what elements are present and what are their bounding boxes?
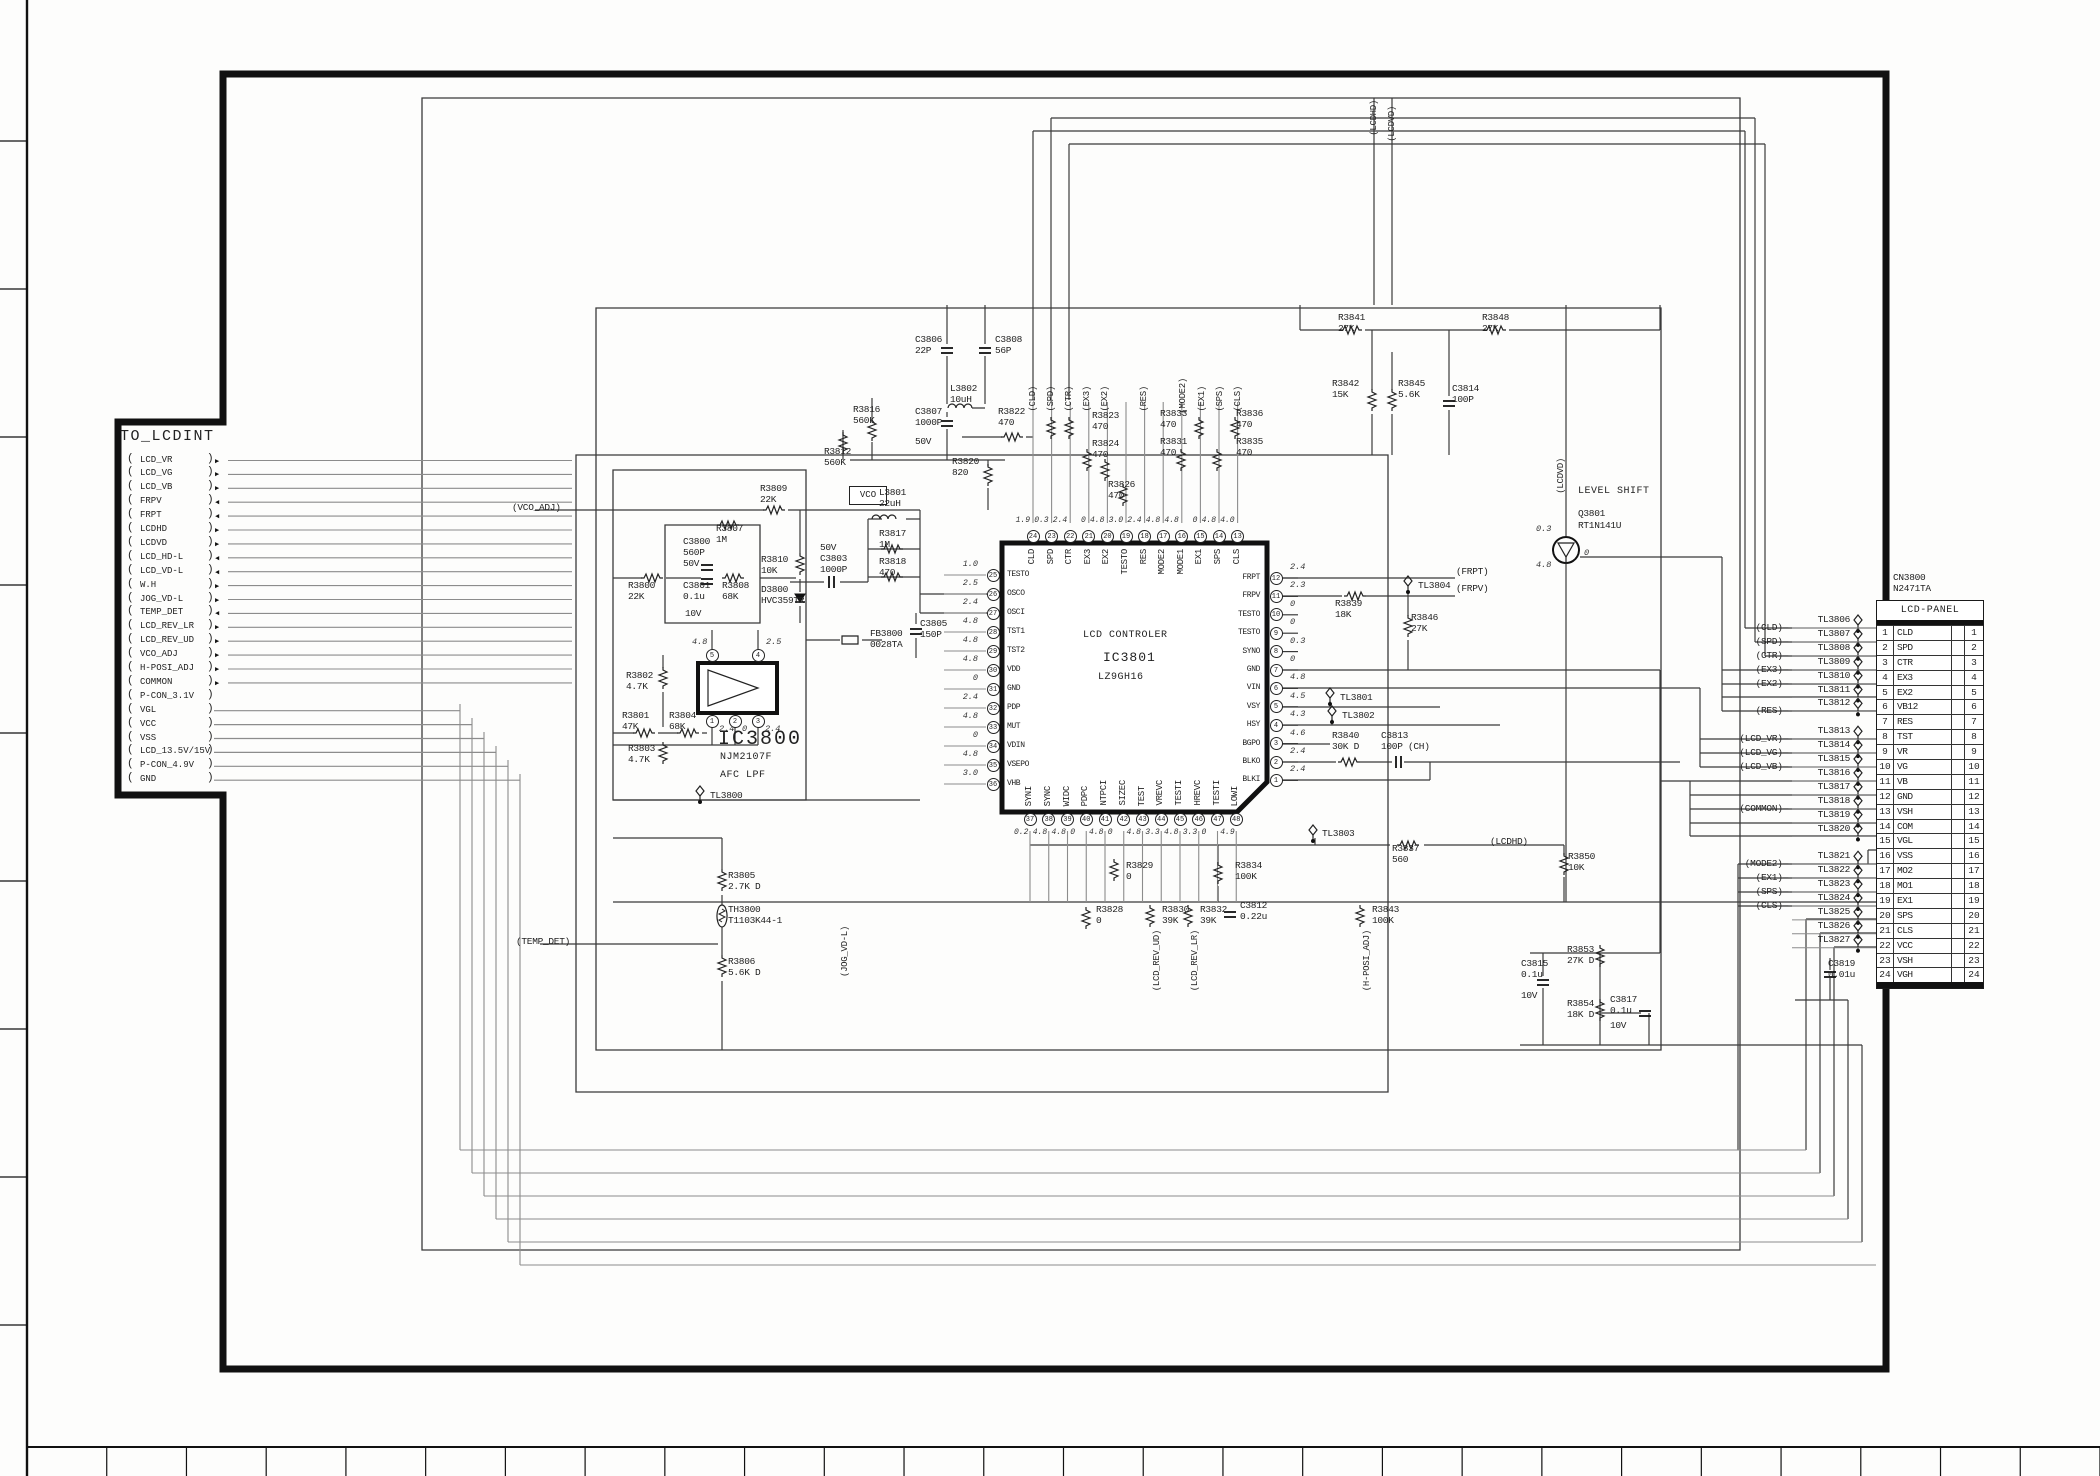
connector-blank-cell [1952,805,1965,819]
signal-arrow-in: ◀ [215,498,219,507]
connector-row-5: 5EX25 [1877,685,1983,700]
wire-tag: (CLS)— [1676,900,1788,911]
testpoint-tl3807: TL3807 [1790,628,1850,639]
pin-voltage: 2.4 [1290,746,1305,756]
signal-arrow-in: ◀ [215,554,219,563]
wire-tag-spd: (SPD) [1046,386,1056,412]
connector-row-7: 7RES7 [1877,714,1983,729]
connector-blank-cell [1952,790,1965,804]
pin-voltage: 4.8 [1198,516,1216,525]
connector-row-9: 9VR9 [1877,744,1983,759]
ic3801-pin-name-widc: WIDC [1062,786,1072,806]
connector-pin-number: 9 [1877,745,1894,759]
ic3801-pin-name-vrevc: VREVC [1155,780,1165,806]
symbol [1854,615,1862,625]
symbol [1857,713,1860,716]
signal-arrow-in: ◀ [215,609,219,618]
connector-pin-number-right: 7 [1965,715,1983,729]
connector-pin-name: TST [1894,730,1952,744]
wire-tag: (CLD)— [1676,622,1788,633]
part-r3839: R3839 18K [1335,598,1362,620]
connector-row-24: 24VGH24 [1877,967,1983,982]
symbol [1854,726,1862,736]
part-r3800: R3800 22K [628,580,655,602]
ic3801-pin-name-vsy: VSY [1202,702,1260,711]
connector-pin-number-right: 1 [1965,626,1983,640]
signal-label-h-posi-adj: H-POSI_ADJ [140,663,194,673]
symbol [842,636,858,644]
ic3801-pin-4: 4 [1270,719,1283,732]
connector-pin-name: SPS [1894,909,1952,923]
wire-tag-lcdrevud: (LCD_REV_UD) [1152,930,1162,991]
testpoint-tl3813: TL3813 [1790,725,1850,736]
signal-arrow-out: ▶ [215,651,219,660]
signal-bracket-open: ( [127,536,134,548]
signal-bracket-open: ( [127,689,134,701]
ic3801-pin-name-ex1: EX1 [1194,549,1204,564]
signal-bracket-close: ) [207,689,214,701]
ic3801-pin-40: 40 [1080,813,1093,826]
pin-voltage: 2.4 [1049,516,1067,525]
part-r3816: R3816 560K [853,404,880,426]
signal-bracket-open: ( [127,758,134,770]
connector-pin-number: 12 [1877,790,1894,804]
connector-pin-number: 10 [1877,760,1894,774]
signal-bracket-open: ( [127,564,134,576]
connector-pin-number-right: 12 [1965,790,1983,804]
connector-pin-number-right: 19 [1965,894,1983,908]
pin-voltage: 4.8 [944,749,978,759]
ic3801-pin-name-mut: MUT [1007,722,1020,731]
connector-pin-name: CLD [1894,626,1952,640]
ic3801-pin-24: 24 [1027,530,1040,543]
wire-tag-ctr: (CTR) [1064,386,1074,412]
ic3801-pin-47: 47 [1211,813,1224,826]
connector-blank-cell [1952,879,1965,893]
ic3801-pin-19: 19 [1120,530,1133,543]
connector-pin-number-right: 2 [1965,641,1983,655]
ic3801-pin-23: 23 [1045,530,1058,543]
signal-arrow-in: ◀ [215,512,219,521]
part-l3802: L3802 10uH [950,383,977,405]
ic3801-pin-34: 34 [987,740,1000,753]
ic3800-pin-voltage: 2.4 [765,724,780,734]
connector-pin-number: 4 [1877,671,1894,685]
ic3801-pin-name-sync: SYNC [1043,786,1053,806]
connector-blank-cell [1952,671,1965,685]
wire-tag-jogvdl: (JOG_VD-L) [840,926,850,977]
testpoint-tl3810: TL3810 [1790,670,1850,681]
pin-voltage: 4.8 [1161,516,1179,525]
connector-pin-name: VCC [1894,939,1952,953]
ic3801-pin-20: 20 [1101,530,1114,543]
pin-voltage: 4.8 [1164,828,1178,837]
wire-tag: (LCD_VG)— [1676,747,1788,758]
testpoint-tl3823: TL3823 [1790,878,1850,889]
wire-tag-cld: (CLD) [1028,386,1038,412]
connector-row-16: 16VSS16 [1877,848,1983,863]
ic3800-pin-voltage: 2.5 [766,637,781,647]
wire-tag-lcdhd: (LCDHD) [1369,100,1379,136]
signal-bracket-open: ( [127,592,134,604]
ic3801-pin-26: 26 [987,588,1000,601]
signal-bracket-close: ) [207,744,214,756]
ic3801-desc: LCD CONTROLER [1083,630,1168,641]
ic3801-pin-name-testo: TESTO [1202,610,1260,619]
testpoint-tl3814: TL3814 [1790,739,1850,750]
testpoint-tl3827: TL3827 [1790,934,1850,945]
ic3801-pin-16: 16 [1175,530,1188,543]
connector-pin-number: 20 [1877,909,1894,923]
testpoint-tl3824: TL3824 [1790,892,1850,903]
signal-bracket-open: ( [127,717,134,729]
wire-tag: (COMMON)— [1676,803,1788,814]
part-r3802: R3802 4.7K [626,670,653,692]
connector-row-1: 1CLD1 [1877,625,1983,640]
wire-tag-lcdvd: (LCDVD) [1387,106,1397,142]
signal-arrow-out: ▶ [215,582,219,591]
testpoint-tl3826: TL3826 [1790,920,1850,931]
ic3801-pin-name-testi: TESTI [1174,780,1184,806]
testpoint-tl3817: TL3817 [1790,781,1850,792]
connector-pin-name: VSH [1894,805,1952,819]
connector-row-11: 11VB11 [1877,774,1983,789]
connector-pin-name: VG [1894,760,1952,774]
ic3801-pin-2: 2 [1270,756,1283,769]
connector-pin-number-right: 13 [1965,805,1983,819]
signal-arrow-out: ▶ [215,484,219,493]
connector-pin-number-right: 16 [1965,849,1983,863]
connector-pin-number-right: 15 [1965,834,1983,848]
symbol [1331,721,1334,724]
signal-bracket-close: ) [207,550,214,562]
connector-pin-number: 5 [1877,686,1894,700]
symbol [1083,449,1091,471]
connector-blank-cell [1952,834,1965,848]
ic3801-pin-1: 1 [706,715,719,728]
pin-voltage: 0 [944,673,978,683]
symbol [1082,907,1090,929]
signal-label-temp-det: TEMP_DET [140,607,183,617]
part-tl3803: TL3803 [1322,828,1354,839]
pin-voltage: 1.0 [944,559,978,569]
wire-tag-lcdhd: (LCDHD) [1490,836,1528,847]
connector-row-4: 4EX34 [1877,670,1983,685]
part-r3837: R3837 560 [1392,843,1419,865]
part-r3848: R3848 27K [1482,312,1509,334]
ic3801-pin-27: 27 [987,607,1000,620]
ic3801-pin-17: 17 [1157,530,1170,543]
pin-voltage: 4.8 [1290,672,1305,682]
connector-blank-cell [1952,641,1965,655]
signal-bracket-close: ) [207,592,214,604]
ic3801-pin-6: 6 [1270,682,1283,695]
signal-bracket-open: ( [127,494,134,506]
connector-row-6: 6VB126 [1877,699,1983,714]
part-c3801: C3801 0.1u [683,580,710,602]
connector-blank-cell [1952,730,1965,744]
signal-bracket-open: ( [127,675,134,687]
pin-voltage: 4.8 [1089,828,1103,837]
part-r3808: R3808 68K [722,580,749,602]
connector-row-19: 19EX119 [1877,893,1983,908]
part-r3806: R3806 5.6K D [728,956,760,978]
part-l3801: L3801 22uH [879,487,906,509]
signal-arrow-in: ◀ [215,568,219,577]
connector-blank-cell [1952,849,1965,863]
signal-label-lcd-vb: LCD_VB [140,482,172,492]
symbol [1213,449,1221,471]
symbol [719,909,725,922]
symbol [696,786,704,796]
ic3801-pin-18: 18 [1138,530,1151,543]
ic3801-pin-name-test: TEST [1137,786,1147,806]
part-10v: 10V [685,608,701,619]
connector-pin-number-right: 5 [1965,686,1983,700]
part-r3841: R3841 27K [1338,312,1365,334]
part-50v: 50V [915,436,931,447]
pin-voltage: 0.3 [1290,636,1305,646]
signal-arrow-out: ▶ [215,596,219,605]
part-tl3800: TL3800 [710,790,742,801]
testpoint-tl3815: TL3815 [1790,753,1850,764]
symbol [1047,417,1055,439]
part-r3846: R3846 27K [1411,612,1438,634]
ic3801-pin-name-pdpc: PDPC [1080,786,1090,806]
signal-bracket-close: ) [207,661,214,673]
pin-voltage: 2.4 [1290,562,1305,572]
signal-label-gnd: GND [140,774,156,784]
ic3801-pin-name-gnd: GND [1202,665,1260,674]
symbol [1558,543,1574,557]
pin-voltage: 4.9 [1220,828,1234,837]
connector-pin-name: SPD [1894,641,1952,655]
symbol [1195,417,1203,439]
connector-ref: CN3800N2471TA [1893,572,1931,594]
wire-tag-frpv: (FRPV) [1456,583,1488,594]
wire-tag: (SPD)— [1676,636,1788,647]
ic3801-pin-42: 42 [1117,813,1130,826]
pin-voltage: 2.4 [944,597,978,607]
testpoint-tl3816: TL3816 [1790,767,1850,778]
wire-tag-res: (RES) [1139,386,1149,412]
connector-pin-name: EX2 [1894,686,1952,700]
wire-tag-frpt: (FRPT) [1456,566,1488,577]
ic3801-pin-name-mode1: MODE1 [1176,549,1186,575]
ic3801-pin-name-testi: TESTI [1212,780,1222,806]
pin-voltage: 3.3 [1145,828,1159,837]
ic3801-pin-43: 43 [1136,813,1149,826]
part-r3809: R3809 22K [760,483,787,505]
part-c3806: C3806 22P [915,334,942,356]
part-r3850: R3850 10K [1568,851,1595,873]
connector-blank-cell [1952,894,1965,908]
ic3801-pin-name-testo: TESTO [1120,549,1130,575]
pin-voltage: 4.8 [1086,516,1104,525]
pin-voltage: 4.6 [1290,728,1305,738]
part-r3805: R3805 2.7K D [728,870,760,892]
part-r3820: R3820 820 [952,456,979,478]
signal-bracket-close: ) [207,564,214,576]
wire-tag: (LCD_VR)— [1676,733,1788,744]
part-10v: 10V [1610,1020,1626,1031]
level-shift-v-mid: 0 [1584,548,1589,558]
testpoint-tl3809: TL3809 [1790,656,1850,667]
signal-arrow-out: ▶ [215,623,219,632]
signal-arrow-out: ▶ [215,457,219,466]
ic3801-pin-46: 46 [1192,813,1205,826]
symbol [796,553,804,575]
part-r3804: R3804 68K [669,710,696,732]
connector-row-13: 13VSH13 [1877,804,1983,819]
signal-bracket-close: ) [207,453,214,465]
part-r3807: R3807 1M [716,523,743,545]
part-r3828: R3828 0 [1096,904,1123,926]
pin-voltage: 4.8 [1127,828,1141,837]
connector-row-15: 15VGL15 [1877,833,1983,848]
part-r3829: R3829 0 [1126,860,1153,882]
connector-row-18: 18MO118 [1877,878,1983,893]
connector-blank-cell [1952,924,1965,938]
signal-bracket-close: ) [207,536,214,548]
symbol [1857,838,1860,841]
ic3801-pin-13: 13 [1231,530,1244,543]
part-r3824: R3824 470 [1092,438,1119,460]
level-shift-ref: Q3801 [1578,508,1605,519]
ic3801-pin-name-pdp: PDP [1007,703,1020,712]
ic3801-pin-7: 7 [1270,664,1283,677]
testpoint-tl3820: TL3820 [1790,823,1850,834]
connector-pin-number: 18 [1877,879,1894,893]
schematic-sheet: TO_LCDINT VCO LCD CONTROLER IC3801 LZ9GH… [0,0,2100,1476]
connector-row-17: 17MO217 [1877,863,1983,878]
signal-label-vgl: VGL [140,705,156,715]
part-r3801: R3801 47K [622,710,649,732]
connector-blank-cell [1952,760,1965,774]
pin-voltage: 2.4 [944,692,978,702]
part-r3831: R3831 470 [1160,436,1187,458]
part-c3812: C3812 0.22u [1240,900,1267,922]
part-r3818: R3818 470 [879,556,906,578]
signal-label-lcd-vd-l: LCD_VD-L [140,566,183,576]
wire-tag: (SPS)— [1676,886,1788,897]
ic3801-pin-name-frpt: FRPT [1202,573,1260,582]
connector-pin-number: 14 [1877,820,1894,834]
connector-blank-cell [1952,656,1965,670]
part-r3832: R3832 39K [1200,904,1227,926]
testpoint-tl3812: TL3812 [1790,697,1850,708]
wire-tag-hposiadj: (H-POSI_ADJ) [1362,930,1372,991]
connector-blank-cell [1952,775,1965,789]
wire-tag: (LCD_VB)— [1676,761,1788,772]
connector-pin-name: VSH [1894,954,1952,968]
ic3801-pin-name-testo: TESTO [1202,628,1260,637]
to-lcdint-title: TO_LCDINT [120,428,215,445]
pin-voltage: 4.8 [1033,828,1047,837]
symbol [1146,905,1154,927]
ic3801-pin-36: 36 [987,778,1000,791]
ic3801-part: LZ9GH16 [1098,672,1144,683]
ic3801-pin-name-res: RES [1139,549,1149,564]
connector-pin-number: 16 [1877,849,1894,863]
part-r3842: R3842 15K [1332,378,1359,400]
pin-voltage: 4.8 [1052,828,1066,837]
level-shift-v-bot: 4.8 [1536,560,1551,570]
testpoint-tl3818: TL3818 [1790,795,1850,806]
signal-bracket-open: ( [127,731,134,743]
ic3801-pin-33: 33 [987,721,1000,734]
connector-pin-number-right: 14 [1965,820,1983,834]
symbol [659,667,667,689]
symbol [1329,703,1332,706]
pin-voltage: 4.8 [944,711,978,721]
level-shift-part: RT1N141U [1578,520,1621,531]
signal-bracket-close: ) [207,605,214,617]
signal-bracket-close: ) [207,647,214,659]
ic3801-pin-name-ntpci: NTPCI [1099,780,1109,806]
lcd-panel-title: LCD-PANEL [1877,601,1983,625]
connector-row-22: 22VCC22 [1877,938,1983,953]
connector-row-2: 2SPD2 [1877,640,1983,655]
signal-bracket-close: ) [207,703,214,715]
connector-pin-name: VGH [1894,968,1952,982]
pin-voltage: 4.8 [944,635,978,645]
ic3801-pin-name-lowi: LOWI [1230,786,1240,806]
wire-tag-vcoadj: (VCO_ADJ) [512,502,561,513]
symbol [763,506,785,514]
connector-row-14: 14COM14 [1877,819,1983,834]
wire-tag-mode2: (MODE2) [1178,378,1188,414]
ic3801-pin-15: 15 [1194,530,1207,543]
connector-pin-name: RES [1894,715,1952,729]
signal-label-lcdvd: LCDVD [140,538,167,548]
connector-pin-number: 11 [1877,775,1894,789]
wire-tag: (RES)— [1676,705,1788,716]
signal-label-vco-adj: VCO_ADJ [140,649,178,659]
ic3801-pin-name-blki: BLKI [1202,775,1260,784]
ic3801-pin-name-sizec: SIZEC [1118,780,1128,806]
ic3801-pin-name-vin: VIN [1202,683,1260,692]
ic3801-pin-5: 5 [1270,700,1283,713]
testpoint-tl3825: TL3825 [1790,906,1850,917]
connector-pin-number: 19 [1877,894,1894,908]
connector-pin-number-right: 8 [1965,730,1983,744]
symbol [718,869,726,891]
connector-pin-number-right: 18 [1965,879,1983,893]
connector-pin-number: 17 [1877,864,1894,878]
pin-voltage: 0 [1179,516,1197,525]
connector-pin-number: 21 [1877,924,1894,938]
ic3800-desc: AFC LPF [720,770,766,781]
signal-bracket-close: ) [207,466,214,478]
ic3801-pin-name-cls: CLS [1232,549,1242,564]
signal-arrow-out: ▶ [215,470,219,479]
ic3801-pin-name-syni: SYNI [1024,786,1034,806]
connector-pin-number-right: 9 [1965,745,1983,759]
symbol [1368,389,1376,411]
symbol [1326,688,1334,698]
pin-voltage: 2.4 [1124,516,1142,525]
ic3801-pin-name-frpv: FRPV [1202,591,1260,600]
connector-pin-number: 22 [1877,939,1894,953]
ic3801-pin-name-gnd: GND [1007,684,1020,693]
pin-voltage: 4.3 [1290,709,1305,719]
pin-voltage: 0 [944,730,978,740]
connector-pin-name: VR [1894,745,1952,759]
part-r3854: R3854 18K D [1567,998,1594,1020]
symbol [1338,758,1360,766]
signal-bracket-open: ( [127,661,134,673]
